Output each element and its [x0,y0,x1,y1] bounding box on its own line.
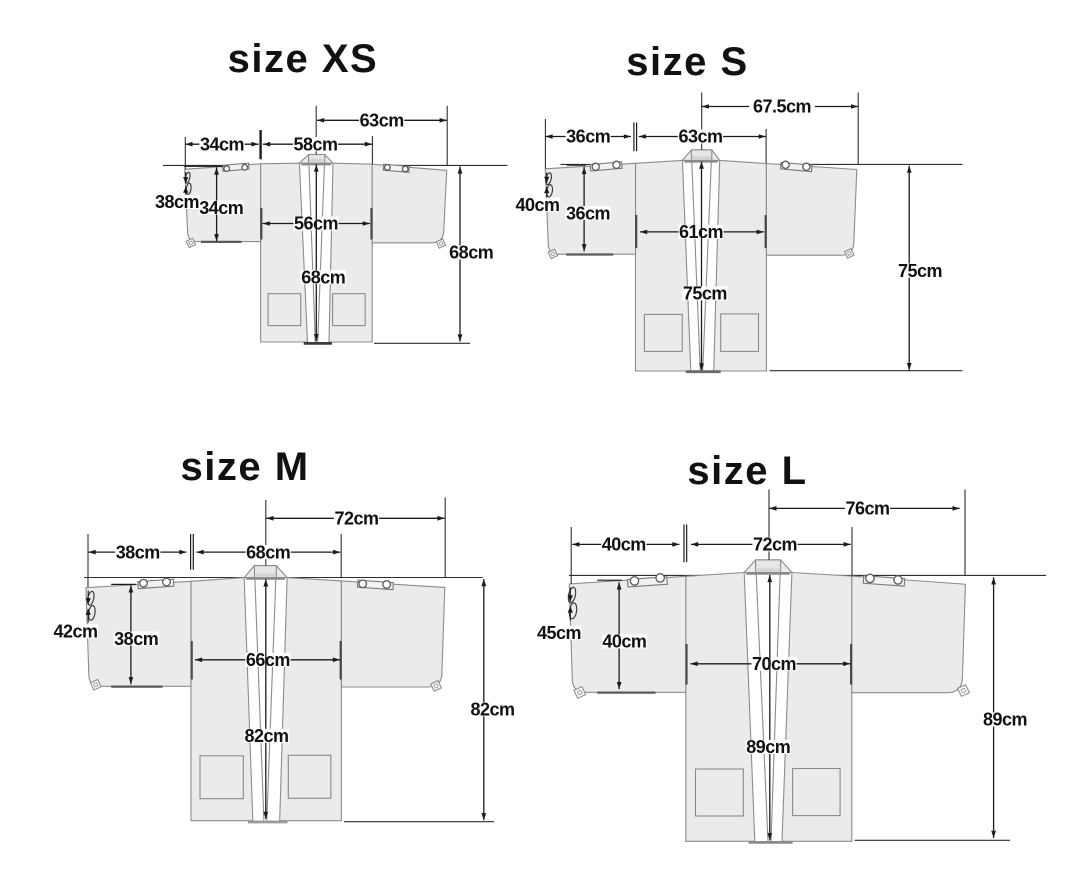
svg-text:63cm: 63cm [360,111,404,131]
svg-text:40cm: 40cm [602,535,646,555]
svg-text:72cm: 72cm [334,509,378,529]
svg-text:34cm: 34cm [199,198,243,218]
svg-text:38cm: 38cm [116,542,160,562]
svg-text:68cm: 68cm [301,267,345,287]
svg-text:40cm: 40cm [602,632,646,652]
svg-text:58cm: 58cm [293,134,337,154]
svg-text:63cm: 63cm [678,127,722,147]
svg-text:45cm: 45cm [537,623,581,643]
svg-text:76cm: 76cm [845,499,889,519]
svg-text:82cm: 82cm [244,726,288,746]
svg-text:38cm: 38cm [155,192,199,212]
svg-text:75cm: 75cm [683,284,727,304]
svg-text:38cm: 38cm [114,629,158,649]
svg-text:89cm: 89cm [746,737,790,757]
svg-text:75cm: 75cm [898,261,942,281]
svg-text:70cm: 70cm [752,654,796,674]
svg-text:67.5cm: 67.5cm [753,97,811,117]
svg-text:68cm: 68cm [449,243,493,263]
svg-text:36cm: 36cm [566,203,610,223]
svg-text:size XS: size XS [228,37,379,81]
svg-text:72cm: 72cm [753,535,797,555]
svg-text:89cm: 89cm [983,710,1027,730]
svg-text:66cm: 66cm [246,650,290,670]
svg-text:size M: size M [180,445,309,489]
svg-text:40cm: 40cm [515,195,559,215]
svg-text:size L: size L [687,449,807,493]
svg-text:68cm: 68cm [246,542,290,562]
svg-text:34cm: 34cm [200,134,244,154]
svg-text:size S: size S [626,40,748,84]
svg-text:36cm: 36cm [566,127,610,147]
svg-text:82cm: 82cm [470,699,514,719]
svg-text:42cm: 42cm [53,621,97,641]
